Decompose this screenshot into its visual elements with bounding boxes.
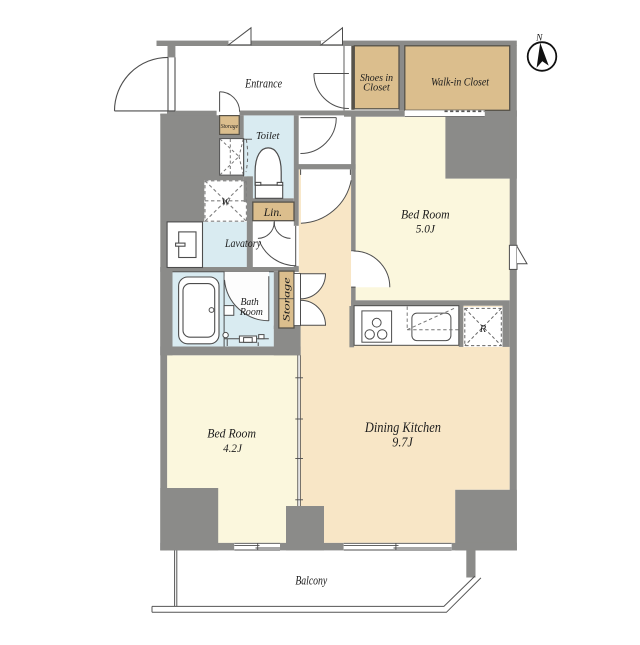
svg-text:Toilet: Toilet [256, 130, 280, 142]
svg-text:Lavatory: Lavatory [224, 238, 262, 250]
svg-text:Storage: Storage [221, 123, 239, 130]
svg-text:Closet: Closet [363, 81, 391, 93]
svg-text:9.7J: 9.7J [392, 435, 413, 450]
svg-text:Balcony: Balcony [295, 573, 327, 587]
svg-text:Entrance: Entrance [244, 76, 282, 91]
svg-text:Room: Room [239, 307, 263, 318]
svg-text:4.2J: 4.2J [223, 441, 242, 455]
svg-text:Lin.: Lin. [263, 205, 282, 219]
svg-text:Walk-in Closet: Walk-in Closet [431, 75, 490, 89]
svg-text:N: N [535, 34, 543, 44]
svg-text:R: R [479, 324, 487, 335]
svg-text:W: W [221, 198, 231, 209]
svg-text:Bed Room: Bed Room [207, 427, 256, 441]
svg-text:5.0J: 5.0J [416, 222, 436, 236]
svg-text:Storage: Storage [282, 278, 292, 322]
svg-text:Bed Room: Bed Room [401, 207, 450, 221]
